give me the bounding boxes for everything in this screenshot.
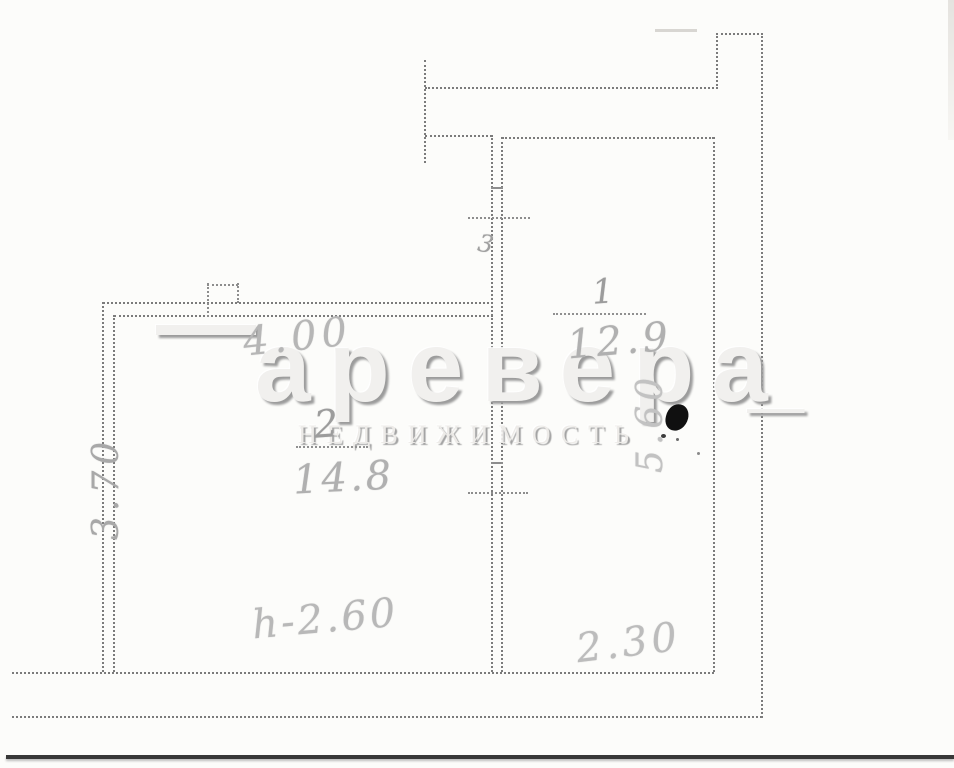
- wall-outer-bottom: [12, 716, 762, 718]
- room2-label-underline: [296, 446, 368, 448]
- dim-tick-partition-lower-inner: [491, 462, 503, 464]
- wall-inner-bottom: [12, 672, 714, 674]
- ink-speck-1: [661, 434, 666, 438]
- ink-speck-3: [697, 452, 700, 455]
- wall-notch-left: [716, 33, 718, 89]
- dim-room1-depth: 5.60: [630, 348, 666, 473]
- dim-tick-partition-lower: [468, 492, 528, 494]
- wall-outer-top: [425, 87, 718, 89]
- ink-speck-2: [676, 438, 679, 441]
- dim-room1-width: 2.30: [574, 614, 684, 672]
- dim-tick-partition-upper-inner: [491, 187, 503, 189]
- dim-ceiling-height: h-2.60: [250, 590, 400, 649]
- room1-number: 1: [591, 271, 615, 312]
- dim-room2-depth: 3.70: [86, 420, 122, 540]
- room1-label-underline: [553, 313, 646, 315]
- floor-plan-scan: — аревера _ НЕДВИЖИМОСТЬ 1 12.9 2 14.8 4…: [0, 0, 954, 768]
- dim-tick-partition-upper: [468, 217, 530, 219]
- wall-inner-top-left: [425, 135, 492, 137]
- wall-top-stub-left: [424, 60, 426, 163]
- wall-inner-top-right: [502, 137, 714, 139]
- wall-notch-top: [716, 33, 763, 35]
- room2-area: 14.8: [292, 452, 395, 503]
- watermark-trailing-underscore: _: [748, 310, 804, 425]
- scan-edge-right: [948, 0, 954, 140]
- scan-smudge-top: [655, 29, 697, 32]
- room2-number: 2: [312, 401, 339, 447]
- scan-bottom-edge: [6, 755, 954, 759]
